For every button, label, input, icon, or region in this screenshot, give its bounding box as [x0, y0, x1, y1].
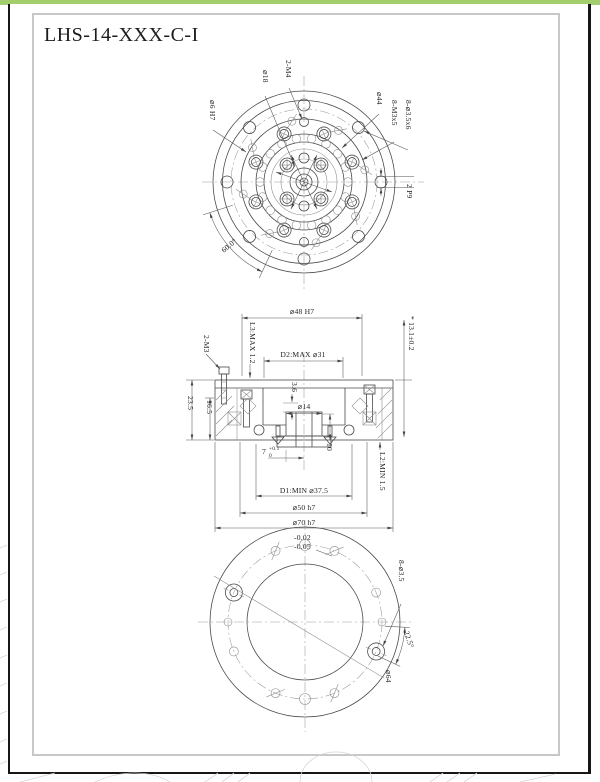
label-8dia35x6: 8-⌀3.5x6	[404, 100, 413, 130]
dim-l3: L3:MAX 1.2	[248, 322, 257, 364]
label-2p9: 2 P9	[405, 184, 414, 199]
dim-l2: L2:MIN 1.5	[378, 452, 387, 491]
dim-d1: D1:MIN ⌀37.5	[280, 486, 328, 495]
dim-dia70: ⌀70 h7	[293, 518, 316, 527]
dim-dia50: ⌀50 h7	[293, 503, 316, 512]
dim-dia48: ⌀48 H7	[290, 307, 315, 316]
dim-10: 10	[325, 443, 334, 451]
dim-d2: D2:MAX ⌀31	[280, 350, 325, 359]
dim-dia64: ⌀64	[384, 670, 393, 683]
dim-7-tol-up: +0.1	[269, 446, 280, 452]
dim-7: 7	[262, 447, 266, 456]
label-dia6h7: ⌀6 H7	[208, 100, 217, 121]
dim-7-tol-lo: 0	[269, 453, 272, 459]
label-dia44: ⌀44	[375, 92, 384, 105]
page-margin-decorations	[0, 545, 556, 782]
dim-36: 3.6	[290, 382, 299, 392]
dim-2m3: 2-M3	[202, 335, 211, 353]
bottom-view-drawing: 8-⌀3.5 22.5° ⌀64	[198, 520, 416, 732]
technical-drawing-canvas: 2-M4 ⌀18 ⌀6 H7 ⌀44 8-M3x5 8-⌀3.5x6 2 P9 …	[0, 0, 600, 782]
dim-165: 16.5	[205, 400, 214, 414]
dim-131: * 13.1±0.2	[407, 316, 416, 351]
dim-225deg: 22.5°	[402, 630, 416, 649]
label-2-m4: 2-M4	[284, 60, 293, 78]
screenshot-root: { "title": "LHS-14-XXX-C-I", "colors": {…	[0, 0, 600, 782]
dim-8dia35: 8-⌀3.5	[397, 560, 406, 582]
label-dia18: ⌀18	[261, 70, 270, 83]
dim-dia14: ⌀14	[298, 402, 311, 411]
label-8m3x5: 8-M3x5	[390, 100, 399, 126]
label-60deg: 60.0°	[220, 236, 239, 254]
dim-235: 23.5	[186, 396, 195, 410]
section-view-drawing: ⌀48 H7 D2:MAX ⌀31 * 13.1±0.2 L3:MAX 1.2 …	[186, 307, 416, 556]
top-view-drawing: 2-M4 ⌀18 ⌀6 H7 ⌀44 8-M3x5 8-⌀3.5x6 2 P9 …	[202, 60, 424, 290]
